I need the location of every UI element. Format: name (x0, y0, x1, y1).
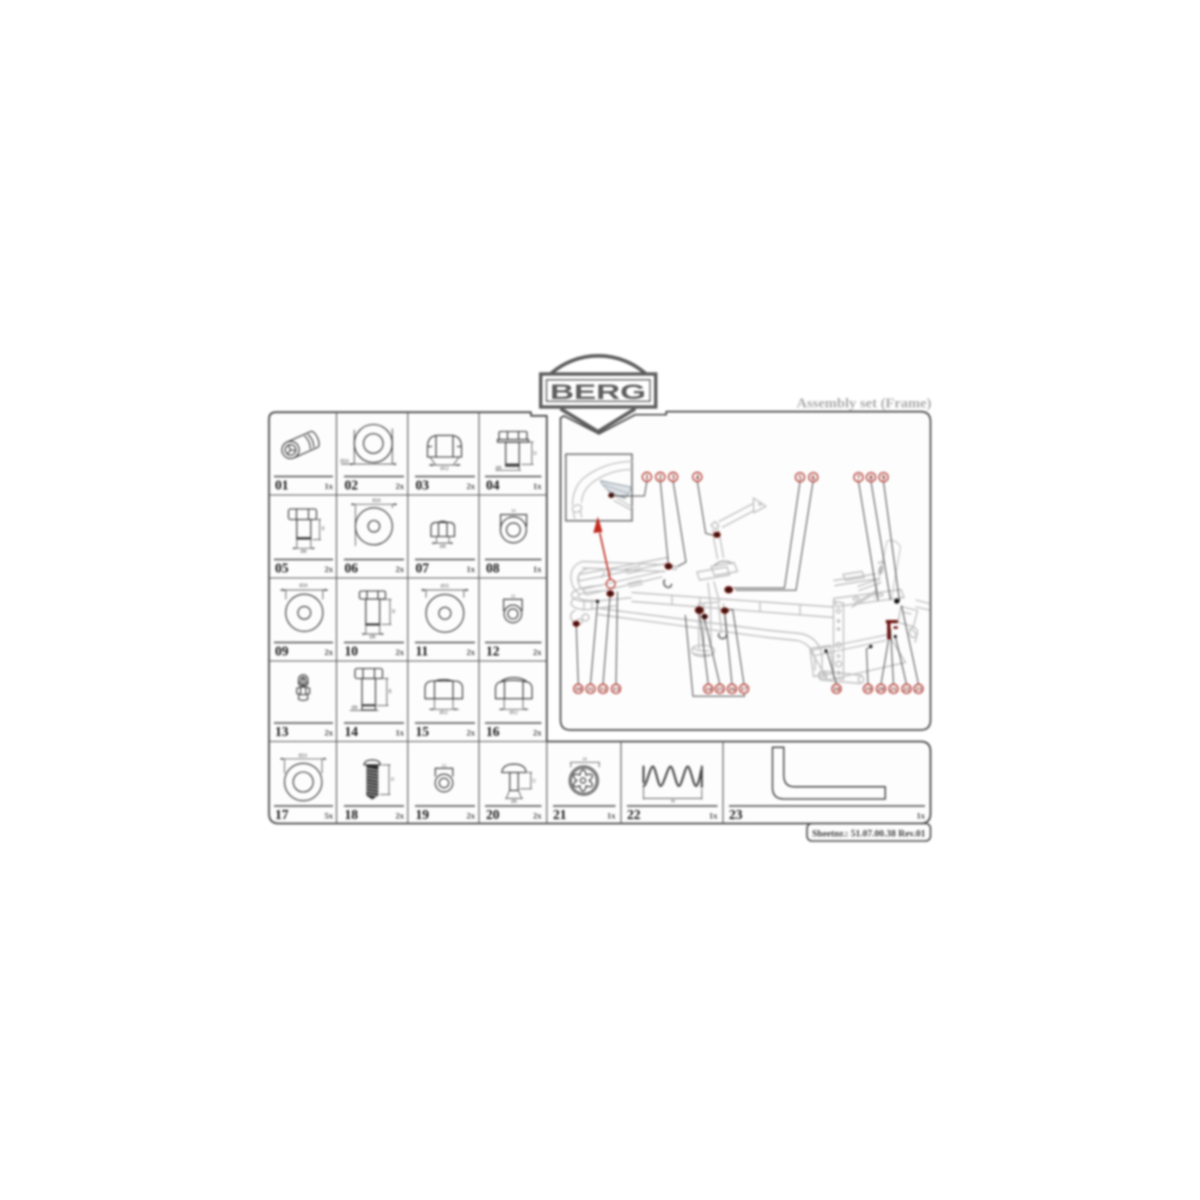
svg-text:22: 22 (903, 686, 910, 693)
svg-text:14: 14 (345, 724, 359, 739)
svg-text:12: 12 (532, 778, 537, 782)
svg-text:2x: 2x (533, 811, 542, 821)
svg-text:BERG: BERG (550, 380, 646, 404)
svg-text:19: 19 (416, 807, 430, 822)
svg-text:05: 05 (275, 561, 289, 576)
svg-text:13: 13 (275, 724, 289, 739)
svg-text:08: 08 (486, 561, 500, 576)
svg-text:17: 17 (741, 686, 748, 693)
svg-text:Ø8: Ø8 (370, 636, 376, 641)
svg-text:Ø12: Ø12 (510, 711, 519, 716)
svg-text:5: 5 (798, 473, 802, 482)
svg-text:1x: 1x (533, 481, 542, 491)
svg-text:2x: 2x (396, 481, 405, 491)
svg-text:14: 14 (705, 686, 712, 693)
svg-text:Ø26: Ø26 (299, 584, 308, 589)
svg-text:23: 23 (729, 807, 743, 822)
svg-text:Ø8: Ø8 (440, 545, 446, 550)
svg-text:15: 15 (716, 686, 723, 693)
svg-text:Ø24: Ø24 (299, 754, 308, 759)
svg-text:11: 11 (416, 644, 429, 659)
svg-text:2x: 2x (396, 647, 405, 657)
svg-text:22: 22 (533, 451, 538, 455)
svg-text:Ø8: Ø8 (301, 550, 307, 555)
svg-text:30: 30 (321, 526, 326, 530)
svg-text:Ø8: Ø8 (352, 706, 358, 711)
svg-text:10: 10 (575, 686, 582, 693)
svg-text:20: 20 (878, 686, 885, 693)
svg-text:2x: 2x (325, 728, 334, 738)
svg-text:6: 6 (811, 473, 815, 482)
svg-text:20: 20 (486, 807, 500, 822)
svg-text:Ø12: Ø12 (440, 711, 449, 716)
svg-text:1x: 1x (467, 564, 476, 574)
svg-text:40: 40 (388, 689, 393, 693)
svg-text:12: 12 (511, 594, 515, 599)
svg-text:7: 7 (857, 473, 861, 482)
svg-text:3: 3 (671, 473, 675, 482)
svg-text:10: 10 (345, 644, 359, 659)
svg-text:2x: 2x (467, 481, 476, 491)
svg-text:23: 23 (915, 686, 922, 693)
svg-text:1x: 1x (917, 811, 926, 821)
svg-text:1: 1 (645, 473, 649, 482)
svg-text:01: 01 (275, 478, 289, 493)
svg-text:Ø8: Ø8 (496, 466, 502, 471)
svg-text:2: 2 (658, 473, 662, 482)
svg-text:19: 19 (865, 686, 872, 693)
svg-text:2x: 2x (396, 564, 405, 574)
svg-text:2x: 2x (325, 647, 334, 657)
svg-text:13: 13 (613, 686, 620, 693)
svg-text:11: 11 (587, 686, 593, 693)
svg-text:28: 28 (391, 609, 396, 613)
svg-text:Ø24: Ø24 (340, 459, 349, 464)
svg-text:Ø26: Ø26 (372, 499, 381, 504)
svg-text:21: 21 (890, 686, 897, 693)
svg-text:04: 04 (486, 478, 500, 493)
svg-text:1x: 1x (396, 728, 405, 738)
svg-text:1x: 1x (533, 564, 542, 574)
svg-text:2x: 2x (467, 811, 476, 821)
svg-text:Ø6: Ø6 (511, 800, 517, 805)
svg-text:2x: 2x (467, 728, 476, 738)
svg-text:09: 09 (275, 644, 289, 659)
svg-text:18: 18 (833, 686, 840, 693)
svg-text:Assembly set (Frame): Assembly set (Frame) (797, 397, 932, 412)
svg-text:Sheetnr.: 51.07.00.38 Rev.01: Sheetnr.: 51.07.00.38 Rev.01 (812, 829, 926, 839)
svg-text:4: 4 (695, 473, 699, 482)
svg-text:12: 12 (486, 644, 500, 659)
svg-text:2x: 2x (533, 728, 542, 738)
svg-text:22: 22 (627, 807, 641, 822)
svg-text:9: 9 (882, 473, 886, 482)
svg-text:15: 15 (416, 724, 430, 739)
svg-text:02: 02 (345, 478, 359, 493)
svg-text:06: 06 (345, 561, 359, 576)
svg-text:1x: 1x (325, 481, 334, 491)
svg-text:Ø12: Ø12 (440, 467, 449, 472)
svg-text:12: 12 (600, 686, 607, 693)
svg-text:35: 35 (390, 777, 395, 781)
svg-text:5x: 5x (325, 811, 334, 821)
svg-text:17: 17 (275, 807, 289, 822)
svg-text:2x: 2x (467, 647, 476, 657)
svg-text:18: 18 (345, 807, 359, 822)
svg-text:16: 16 (486, 724, 500, 739)
svg-text:03: 03 (416, 478, 430, 493)
svg-text:2x: 2x (533, 647, 542, 657)
svg-text:1x: 1x (709, 811, 718, 821)
svg-text:07: 07 (416, 561, 430, 576)
svg-text:12: 12 (442, 763, 446, 768)
svg-text:2x: 2x (325, 564, 334, 574)
svg-text:8: 8 (869, 473, 873, 482)
svg-text:Ø35: Ø35 (441, 584, 450, 589)
svg-text:2x: 2x (396, 811, 405, 821)
svg-text:21: 21 (553, 807, 567, 822)
svg-text:1x: 1x (607, 811, 616, 821)
svg-text:16: 16 (729, 686, 736, 693)
